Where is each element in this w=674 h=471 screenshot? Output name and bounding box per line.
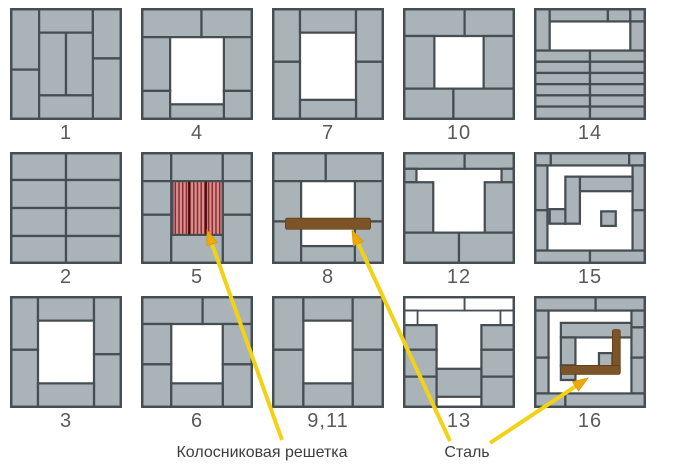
brick xyxy=(356,62,384,120)
brick xyxy=(66,33,93,96)
brick xyxy=(300,100,356,120)
brick xyxy=(203,296,253,324)
brick xyxy=(403,350,437,377)
brick xyxy=(38,383,94,408)
brick xyxy=(485,182,515,232)
brick xyxy=(66,236,122,264)
brick xyxy=(590,62,646,73)
grate-divider xyxy=(205,182,207,235)
course-diagram-9,11 xyxy=(272,296,384,408)
course-number: 15 xyxy=(578,265,602,290)
brick xyxy=(201,8,253,37)
brick xyxy=(326,152,384,181)
course-diagram-8 xyxy=(272,152,384,264)
brick xyxy=(272,8,300,62)
brick xyxy=(561,337,576,365)
brick xyxy=(272,181,301,221)
course-number: 7 xyxy=(322,121,334,146)
brick xyxy=(141,296,203,324)
grate-bar xyxy=(215,182,216,234)
brick xyxy=(10,236,66,264)
brick xyxy=(403,152,465,169)
brick xyxy=(93,8,122,58)
brick xyxy=(66,208,122,236)
masonry-courses-diagram: 14710142581215369,111316 Колосниковая ре… xyxy=(0,0,674,471)
brick xyxy=(224,91,253,120)
brick xyxy=(403,36,434,89)
brick xyxy=(10,296,38,350)
brick xyxy=(141,37,170,91)
course-number: 9,11 xyxy=(307,409,348,434)
grate-divider xyxy=(188,182,190,235)
opening-background xyxy=(534,296,646,408)
brick xyxy=(355,181,384,221)
brick xyxy=(534,84,590,95)
course-number: 13 xyxy=(447,409,471,434)
course-number: 14 xyxy=(578,121,602,146)
course-cell-6: 6 xyxy=(141,296,253,434)
brick xyxy=(561,323,632,338)
brick xyxy=(171,235,223,264)
brick xyxy=(223,152,253,181)
brick xyxy=(223,364,253,408)
brick xyxy=(403,89,453,120)
grate-bar xyxy=(200,182,201,234)
grate-bar xyxy=(219,182,220,234)
brick xyxy=(10,208,66,236)
brick xyxy=(437,369,482,397)
brick xyxy=(10,70,39,120)
brick xyxy=(141,181,171,215)
brick xyxy=(590,84,646,95)
course-cell-4: 4 xyxy=(141,8,253,146)
course-cell-15: 15 xyxy=(534,152,646,290)
brick xyxy=(601,211,616,226)
course-number: 3 xyxy=(60,409,72,434)
grate-bar xyxy=(212,182,213,234)
brick xyxy=(580,177,633,192)
brick xyxy=(303,383,352,408)
brick xyxy=(141,91,170,120)
brick xyxy=(171,152,223,181)
course-diagram-6 xyxy=(141,296,253,408)
brick xyxy=(223,181,253,215)
course-cell-2: 2 xyxy=(10,152,122,290)
course-number: 8 xyxy=(322,265,334,290)
grate-bar xyxy=(197,182,198,234)
brick xyxy=(353,350,384,408)
brick xyxy=(223,324,253,364)
course-diagram-5 xyxy=(141,152,253,264)
brick xyxy=(403,325,437,350)
steel-bar xyxy=(285,218,370,229)
course-cell-1: 1 xyxy=(10,8,122,146)
course-cell-14: 14 xyxy=(534,8,646,146)
brick xyxy=(141,152,171,181)
brick xyxy=(224,37,253,91)
course-diagram-13 xyxy=(403,296,515,408)
course-cell-8: 8 xyxy=(272,152,384,290)
brick xyxy=(38,296,94,321)
course-number: 4 xyxy=(191,121,203,146)
brick xyxy=(590,73,646,84)
course-cell-12: 12 xyxy=(403,152,515,290)
brick xyxy=(39,8,93,33)
course-diagram-14 xyxy=(534,8,646,120)
brick xyxy=(403,8,465,36)
grate-bar xyxy=(175,182,176,234)
grate-bar xyxy=(208,182,209,234)
course-diagram-16 xyxy=(534,296,646,408)
brick xyxy=(10,180,66,208)
brick xyxy=(272,152,326,181)
brick xyxy=(481,350,515,377)
grate-bar xyxy=(193,182,194,234)
grate-bar xyxy=(186,182,187,234)
course-diagram-4 xyxy=(141,8,253,120)
steel-bar xyxy=(561,365,620,374)
brick xyxy=(599,353,612,366)
brick xyxy=(590,51,646,62)
grate-bar xyxy=(182,182,183,234)
brick xyxy=(534,95,590,106)
brick xyxy=(272,296,303,350)
brick xyxy=(565,177,580,224)
brick xyxy=(94,296,122,354)
brick xyxy=(66,152,122,180)
course-cell-10: 10 xyxy=(403,8,515,146)
course-cell-5: 5 xyxy=(141,152,253,290)
brick xyxy=(39,33,66,96)
brick xyxy=(94,354,122,408)
course-number: 16 xyxy=(578,409,602,434)
brick xyxy=(171,383,223,408)
steel-label: Сталь xyxy=(444,444,489,462)
brick xyxy=(484,36,515,89)
course-cell-16: 16 xyxy=(534,296,646,434)
brick xyxy=(300,8,356,33)
brick xyxy=(272,62,300,120)
brick xyxy=(141,8,201,37)
course-diagram-10 xyxy=(403,8,515,120)
brick xyxy=(356,8,384,62)
brick xyxy=(481,377,515,408)
course-cell-9,11: 9,11 xyxy=(272,296,384,434)
brick xyxy=(481,325,515,350)
brick xyxy=(403,377,437,408)
brick xyxy=(93,58,122,120)
course-cell-13: 13 xyxy=(403,296,515,434)
brick xyxy=(39,95,93,120)
brick xyxy=(223,215,253,264)
brick xyxy=(10,350,38,408)
brick xyxy=(10,8,39,70)
course-number: 12 xyxy=(447,265,471,290)
brick xyxy=(66,180,122,208)
brick xyxy=(465,152,515,169)
course-number: 2 xyxy=(60,265,72,290)
brick xyxy=(141,215,171,264)
brick xyxy=(403,233,459,264)
brick xyxy=(453,89,515,120)
course-diagram-1 xyxy=(10,8,122,120)
brick xyxy=(301,246,355,264)
brick xyxy=(590,95,646,106)
brick xyxy=(403,182,433,232)
course-diagram-3 xyxy=(10,296,122,408)
course-number: 6 xyxy=(191,409,203,434)
brick xyxy=(141,324,171,364)
brick xyxy=(534,51,590,62)
brick xyxy=(272,350,303,408)
course-cell-3: 3 xyxy=(10,296,122,434)
course-number: 10 xyxy=(447,121,471,146)
brick xyxy=(10,152,66,180)
brick xyxy=(534,73,590,84)
brick xyxy=(465,8,515,36)
brick xyxy=(550,209,566,224)
brick xyxy=(459,233,515,264)
course-number: 5 xyxy=(191,265,203,290)
brick xyxy=(141,364,171,408)
grate-bar xyxy=(178,182,179,234)
course-diagram-12 xyxy=(403,152,515,264)
course-cell-7: 7 xyxy=(272,8,384,146)
course-diagram-15 xyxy=(534,152,646,264)
course-diagram-2 xyxy=(10,152,122,264)
brick xyxy=(534,62,590,73)
brick xyxy=(303,296,352,321)
grate-label: Колосниковая решетка xyxy=(176,444,347,462)
course-diagram-7 xyxy=(272,8,384,120)
brick xyxy=(353,296,384,350)
course-grid: 14710142581215369,111316 xyxy=(10,8,646,434)
course-number: 1 xyxy=(60,121,72,146)
